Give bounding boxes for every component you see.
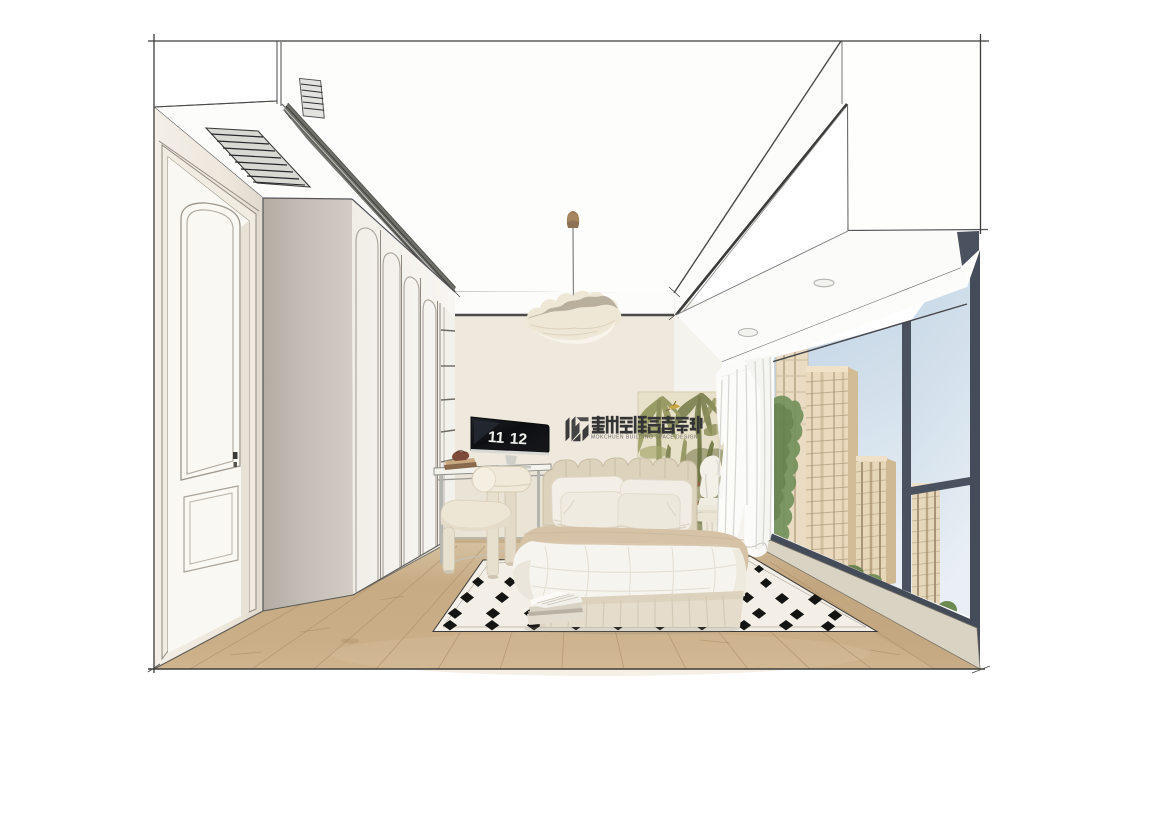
svg-text:MOKCHUEN BUILDING SPACE DESIGN: MOKCHUEN BUILDING SPACE DESIGN xyxy=(591,435,698,441)
svg-text:11 12: 11 12 xyxy=(487,429,527,449)
